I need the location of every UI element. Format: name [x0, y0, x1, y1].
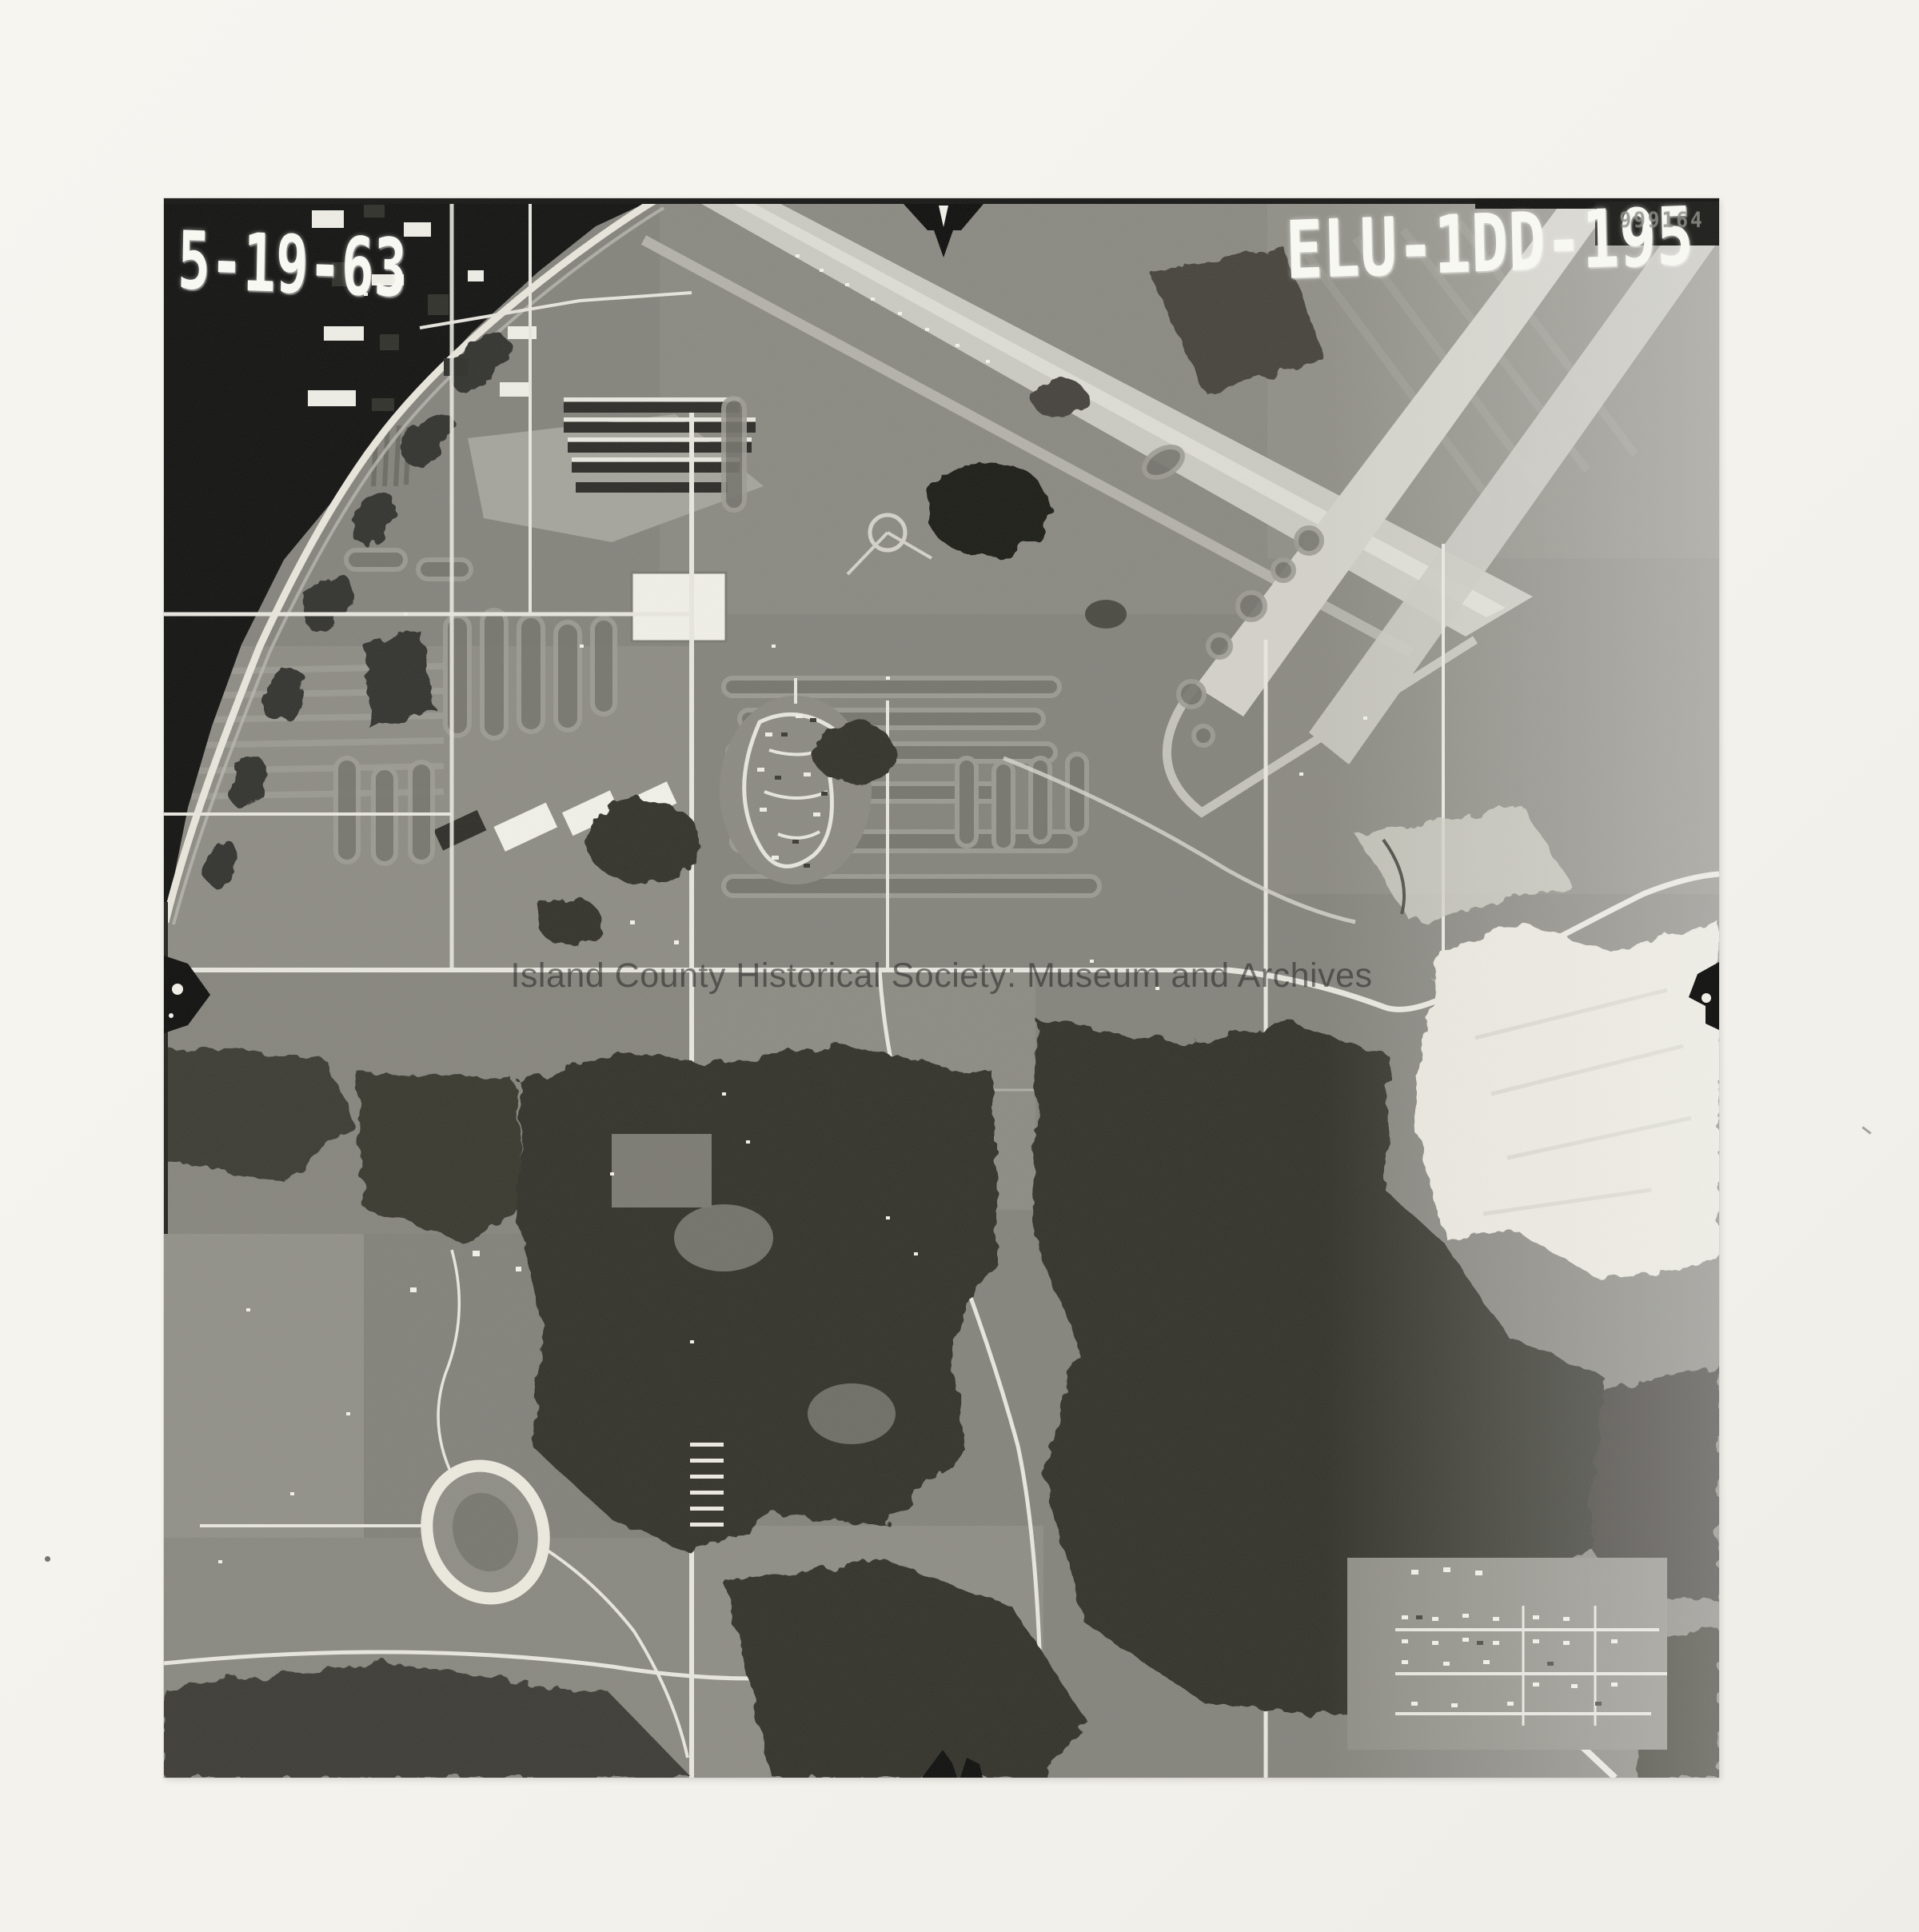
corner-stamp: 999164 [1620, 208, 1705, 233]
paper-speck [1861, 1126, 1871, 1134]
scan-paper: 5-19-63 ELU-1DD-195 999164 Island County… [0, 0, 1919, 1932]
watermark: Island County Historical Society: Museum… [510, 956, 1372, 996]
date-label: 5-19-63 [177, 221, 407, 309]
paper-speck [45, 1556, 50, 1562]
aerial-photograph: 5-19-63 ELU-1DD-195 999164 Island County… [164, 198, 1719, 1778]
